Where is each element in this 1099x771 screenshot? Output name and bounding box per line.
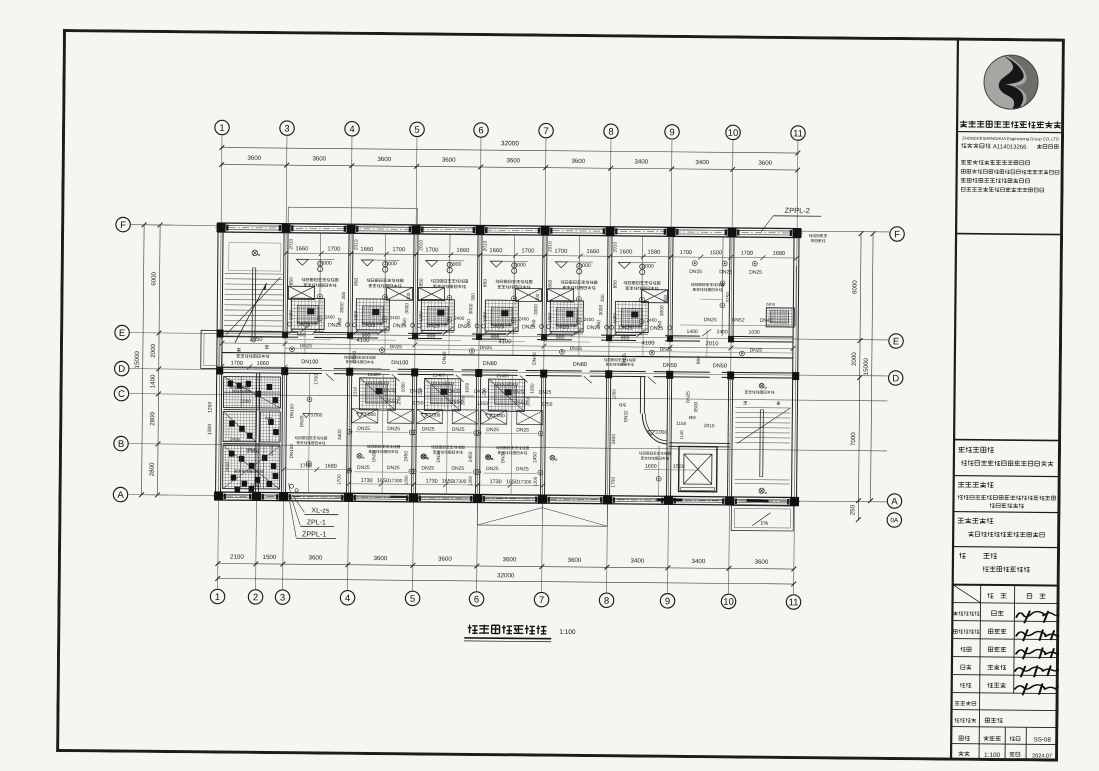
svg-text:DN25: DN25 [516,427,529,433]
svg-text:DN25: DN25 [516,466,529,472]
svg-text:DN25: DN25 [480,345,493,351]
svg-text:2450: 2450 [717,329,728,335]
svg-text:DN80: DN80 [573,362,587,368]
svg-text:9: 9 [669,127,674,138]
svg-text:1500: 1500 [710,250,722,256]
svg-text:1660: 1660 [250,483,261,489]
svg-text:1400: 1400 [687,329,698,335]
svg-text:1250: 1250 [412,400,423,406]
svg-text:1650: 1650 [377,478,389,484]
svg-text:B: B [118,439,124,450]
svg-text:DN25: DN25 [749,270,762,276]
svg-text:1030: 1030 [749,330,760,336]
svg-text:1660: 1660 [360,247,373,253]
svg-text:1200: 1200 [468,475,473,485]
svg-text:5: 5 [414,125,419,136]
svg-text:DN25: DN25 [421,465,434,471]
svg-text:850: 850 [548,279,554,287]
svg-text:900: 900 [491,334,500,340]
svg-text:1260: 1260 [207,402,213,413]
svg-text:A114013266: A114013266 [993,144,1027,150]
svg-text:C: C [118,389,125,400]
svg-text:1600: 1600 [619,249,632,255]
svg-text:2400: 2400 [519,316,530,321]
svg-text:850: 850 [419,278,425,286]
svg-text:DN25: DN25 [357,465,370,471]
svg-text:6: 6 [474,594,479,605]
svg-text:1210: 1210 [481,388,486,398]
svg-text:300: 300 [341,291,346,299]
svg-text:3600: 3600 [374,555,388,562]
svg-text:17300: 17300 [389,478,403,484]
svg-text:8: 8 [604,596,609,607]
svg-text:1700: 1700 [425,247,438,253]
svg-text:1700: 1700 [231,361,243,367]
svg-text:2010: 2010 [704,423,715,429]
svg-text:1700: 1700 [314,374,320,385]
svg-text:15000: 15000 [134,351,141,369]
svg-text:3400: 3400 [634,158,648,165]
svg-text:3600: 3600 [571,158,585,165]
svg-text:F: F [894,229,900,240]
svg-text:2010: 2010 [418,240,424,251]
svg-text:2010: 2010 [547,241,553,252]
svg-text:3600: 3600 [442,157,456,164]
svg-text:1050: 1050 [611,389,616,400]
svg-text:1660: 1660 [295,246,308,252]
svg-text:15000: 15000 [863,358,870,376]
svg-text:3600: 3600 [312,155,326,162]
svg-text:1660: 1660 [257,361,269,367]
svg-text:DN32: DN32 [513,389,526,395]
svg-text:3400: 3400 [337,429,343,440]
svg-text:DN25: DN25 [570,346,583,352]
svg-text:1:100: 1:100 [984,752,1001,759]
svg-text:2010: 2010 [612,242,618,253]
svg-text:1700: 1700 [611,477,617,488]
svg-text:4100: 4100 [642,341,655,347]
svg-text:3400: 3400 [695,159,709,166]
svg-text:DN25: DN25 [387,426,400,432]
svg-text:ZPPL-1: ZPPL-1 [302,529,326,538]
svg-text:DN25: DN25 [650,326,663,332]
svg-text:1200: 1200 [533,476,538,486]
svg-text:2800: 2800 [149,462,156,476]
svg-text:DN25: DN25 [328,323,341,329]
svg-text:6000: 6000 [851,280,858,294]
svg-text:DN80: DN80 [483,361,497,367]
svg-text:1700: 1700 [337,474,343,485]
svg-text:3000: 3000 [598,304,604,315]
svg-text:21400: 21400 [497,373,510,378]
svg-text:DN50: DN50 [230,437,241,442]
svg-text:10: 10 [723,597,734,608]
svg-text:DN25: DN25 [452,427,465,433]
svg-text:DN25: DN25 [660,347,673,353]
svg-text:3600: 3600 [568,557,582,564]
svg-text:2450: 2450 [468,451,474,462]
svg-text:850: 850 [483,279,489,287]
svg-text:3000: 3000 [659,305,665,316]
svg-text:1730: 1730 [426,479,438,485]
svg-text:1680: 1680 [773,251,785,257]
svg-text:10: 10 [728,128,739,139]
svg-text:3000: 3000 [468,303,474,314]
svg-text:1660: 1660 [586,249,599,255]
svg-text:DN100: DN100 [289,404,294,419]
svg-text:1050: 1050 [530,383,535,394]
svg-text:3: 3 [280,593,285,604]
svg-text:21400: 21400 [433,373,446,378]
svg-text:3000: 3000 [339,302,345,313]
svg-text:2010: 2010 [706,341,719,347]
svg-text:DN32: DN32 [436,450,441,462]
svg-text:1660: 1660 [489,248,502,254]
svg-text:DN25: DN25 [704,317,717,323]
svg-text:DN40: DN40 [270,446,274,456]
svg-text:3600: 3600 [754,559,768,566]
svg-text:1250: 1250 [541,402,552,408]
svg-text:DN25: DN25 [387,465,400,471]
svg-text:1680: 1680 [325,464,337,470]
svg-text:DN50: DN50 [663,363,677,369]
svg-text:1700: 1700 [327,247,340,253]
svg-text:2024.07: 2024.07 [1032,753,1052,759]
svg-text:1700: 1700 [554,249,567,255]
svg-text:DN25: DN25 [689,269,702,275]
svg-text:1600: 1600 [645,464,657,470]
svg-text:ZPL-1: ZPL-1 [307,519,326,526]
svg-text:1730: 1730 [361,478,373,484]
svg-text:2280: 2280 [240,399,251,405]
svg-text:1140: 1140 [679,430,684,440]
svg-text:1700: 1700 [392,247,405,253]
svg-text:1050: 1050 [401,382,406,393]
svg-text:2400: 2400 [454,316,465,321]
svg-text:DN25: DN25 [451,466,464,472]
svg-text:DN40: DN40 [442,351,448,364]
svg-text:7: 7 [543,126,548,137]
svg-text:700: 700 [264,416,272,421]
svg-text:32000: 32000 [497,572,515,579]
svg-text:17300: 17300 [453,479,467,485]
svg-text:2060: 2060 [396,395,401,405]
svg-text:DN40: DN40 [532,352,538,365]
svg-text:6: 6 [478,125,483,136]
svg-text:2450: 2450 [532,452,538,463]
svg-text:DN32: DN32 [384,388,397,394]
svg-text:3600: 3600 [377,156,391,163]
svg-text:D: D [892,373,899,384]
svg-text:3600: 3600 [758,160,772,167]
svg-text:5: 5 [410,594,415,605]
svg-text:DN25: DN25 [539,390,552,396]
svg-text:DN25: DN25 [486,466,499,472]
svg-text:3600: 3600 [247,155,261,162]
svg-text:2400: 2400 [390,315,401,320]
svg-text:1660: 1660 [456,248,469,254]
svg-text:DN25: DN25 [422,426,435,432]
svg-text:4: 4 [349,124,354,135]
svg-text:7: 7 [539,595,544,606]
svg-text:2400: 2400 [325,315,336,320]
svg-text:DN25: DN25 [685,391,690,403]
svg-text:2800: 2800 [149,411,156,425]
svg-text:DN50: DN50 [713,363,727,369]
svg-text:900: 900 [556,335,565,341]
svg-text:3: 3 [284,124,289,135]
svg-text:1150: 1150 [676,421,686,426]
svg-text:2010: 2010 [353,239,359,250]
svg-text:A: A [891,496,898,507]
svg-text:2450: 2450 [403,451,409,462]
svg-text:1300: 1300 [207,424,213,435]
svg-text:2050: 2050 [250,337,263,343]
svg-text:2010: 2010 [482,240,488,251]
svg-text:2060: 2060 [525,396,530,406]
svg-text:1700: 1700 [680,250,692,256]
svg-text:ZPPL-2: ZPPL-2 [785,206,811,215]
svg-text:1: 1 [219,123,224,134]
svg-text:1700: 1700 [521,248,534,254]
svg-text:1400: 1400 [150,374,157,388]
svg-text:900: 900 [621,335,630,341]
svg-text:3400: 3400 [692,558,706,565]
svg-text:2: 2 [253,592,258,603]
svg-text:SS-08: SS-08 [1034,736,1052,743]
svg-text:850: 850 [613,280,619,288]
svg-text:3400: 3400 [611,434,617,445]
svg-text:1200: 1200 [404,475,409,485]
svg-text:1:100: 1:100 [559,629,576,636]
svg-text:2010: 2010 [288,239,294,250]
svg-text:1650: 1650 [506,479,518,485]
svg-text:DN32: DN32 [226,462,230,472]
svg-text:1700: 1700 [741,251,753,257]
svg-text:DN100: DN100 [391,360,408,366]
svg-text:DN25: DN25 [457,324,470,330]
svg-text:DN25: DN25 [300,343,313,349]
svg-text:3600: 3600 [309,554,323,561]
svg-text:2060: 2060 [460,396,465,406]
svg-text:XL-zs: XL-zs [311,507,329,514]
svg-text:6000: 6000 [151,271,158,285]
svg-text:2100: 2100 [230,554,244,561]
svg-text:1250: 1250 [477,401,488,407]
svg-text:860: 860 [696,356,702,364]
svg-text:250: 250 [849,504,856,515]
svg-text:3600: 3600 [503,556,517,563]
svg-text:2400: 2400 [647,318,658,323]
svg-text:1500: 1500 [263,554,277,561]
svg-text:1700: 1700 [300,463,312,469]
svg-text:2000: 2000 [150,343,157,357]
svg-text:2000: 2000 [851,352,858,366]
svg-text:7000: 7000 [850,432,857,446]
svg-text:3000: 3000 [404,303,410,314]
svg-text:1730: 1730 [490,479,502,485]
svg-text:DN100: DN100 [289,444,294,459]
svg-text:1050: 1050 [465,382,470,393]
svg-text:850: 850 [289,277,295,285]
svg-text:11: 11 [789,597,799,608]
svg-text:DN25: DN25 [357,426,370,432]
svg-text:1210: 1210 [417,387,422,397]
svg-text:DN52: DN52 [732,317,745,323]
svg-text:900: 900 [297,332,306,338]
svg-text:D: D [118,364,125,375]
svg-text:DN25: DN25 [750,348,763,354]
svg-text:E: E [893,336,899,347]
svg-text:3500: 3500 [693,401,699,412]
svg-text:DN100: DN100 [301,359,318,365]
svg-text:2400: 2400 [766,302,776,307]
svg-text:A: A [117,490,124,501]
svg-text:9: 9 [665,596,670,607]
svg-text:300: 300 [600,294,605,302]
svg-text:F: F [120,220,126,231]
svg-text:DN25: DN25 [486,427,499,433]
svg-text:3600: 3600 [438,556,452,563]
svg-text:4: 4 [345,593,350,604]
svg-text:DN25: DN25 [522,324,535,330]
svg-text:DN32: DN32 [448,389,461,395]
svg-text:3150: 3150 [725,292,731,303]
svg-text:0A: 0A [890,517,899,524]
svg-text:1%: 1% [760,521,768,527]
svg-text:DN32: DN32 [623,410,628,422]
svg-text:DN32: DN32 [500,451,505,463]
svg-text:3400: 3400 [631,557,645,564]
svg-text:3600: 3600 [506,157,520,164]
svg-text:DN25: DN25 [719,269,732,275]
svg-text:4100: 4100 [499,339,512,345]
svg-text:DN25: DN25 [587,325,600,331]
svg-text:32000: 32000 [501,140,520,147]
svg-text:850: 850 [354,277,360,285]
svg-text:1210: 1210 [352,386,357,396]
svg-text:3000: 3000 [533,304,539,315]
svg-text:1650: 1650 [442,479,454,485]
svg-text:300: 300 [470,293,475,301]
svg-text:17300: 17300 [518,479,532,485]
svg-text:11: 11 [793,128,803,139]
svg-text:DN25: DN25 [299,415,304,427]
svg-text:DN32: DN32 [371,450,376,462]
svg-text:1580: 1580 [647,250,660,256]
svg-text:DN25: DN25 [390,344,403,350]
svg-text:21400: 21400 [368,372,381,377]
svg-text:ZHONGKESHENGHUA Engineering Gr: ZHONGKESHENGHUA Engineering Group CO.,LT… [962,136,1059,142]
svg-text:900: 900 [427,334,436,340]
svg-text:DN25: DN25 [393,323,406,329]
svg-text:E: E [119,328,125,339]
svg-text:1: 1 [215,592,220,603]
svg-text:2400: 2400 [584,317,595,322]
svg-text:900: 900 [362,333,371,339]
svg-text:2.900: 2.900 [247,449,259,455]
svg-text:8: 8 [608,127,613,138]
